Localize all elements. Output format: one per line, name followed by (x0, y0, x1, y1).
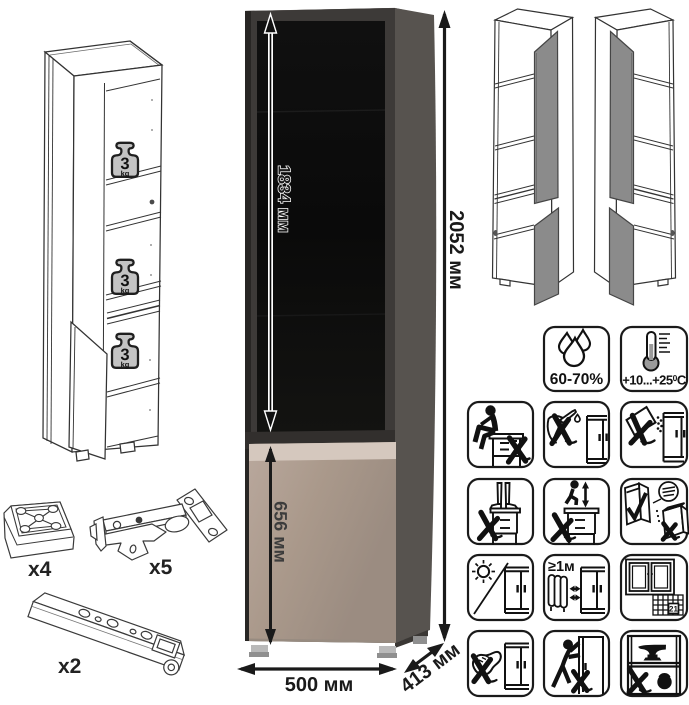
svg-text:+10...+250C: +10...+250C (622, 373, 687, 388)
svg-text:kg: kg (121, 286, 130, 295)
svg-text:x2: x2 (58, 655, 81, 678)
svg-text:500 мм: 500 мм (285, 674, 354, 696)
svg-text:kg: kg (121, 169, 130, 178)
svg-text:kg: kg (121, 360, 130, 369)
svg-text:21: 21 (669, 605, 678, 614)
svg-text:≥1м: ≥1м (548, 559, 575, 575)
svg-text:60-70%: 60-70% (550, 371, 604, 388)
svg-text:1834 мм: 1834 мм (275, 165, 294, 233)
svg-text:x5: x5 (149, 556, 173, 579)
svg-text:656 мм: 656 мм (271, 501, 291, 563)
svg-text:2052 мм: 2052 мм (445, 210, 467, 290)
svg-text:x4: x4 (28, 558, 52, 581)
